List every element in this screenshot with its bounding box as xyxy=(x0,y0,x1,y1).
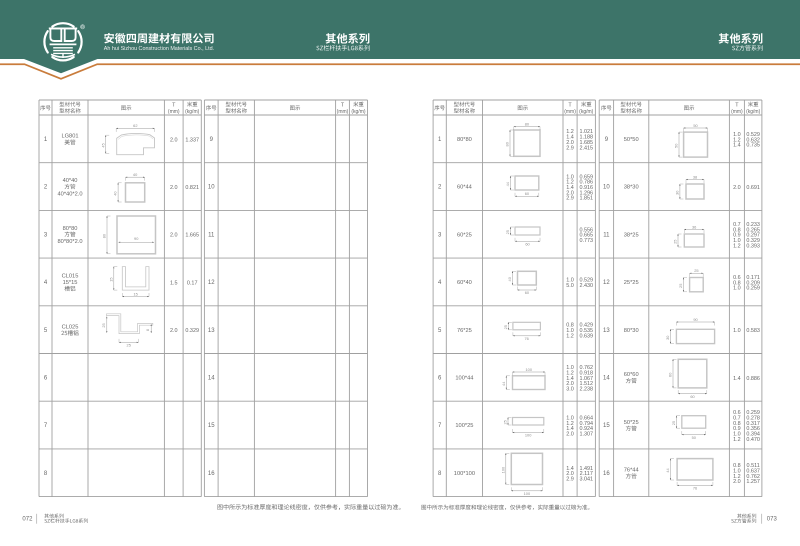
svg-text:38*25: 38*25 xyxy=(624,232,639,238)
svg-text:40*40: 40*40 xyxy=(63,178,78,184)
svg-text:25: 25 xyxy=(101,323,106,327)
svg-text:60: 60 xyxy=(690,394,695,399)
svg-text:(mm): (mm) xyxy=(337,109,349,115)
svg-text:2.0: 2.0 xyxy=(566,431,574,437)
svg-text:80: 80 xyxy=(102,233,107,238)
svg-text:9: 9 xyxy=(210,137,214,143)
svg-text:100: 100 xyxy=(526,367,533,372)
svg-text:60: 60 xyxy=(668,372,673,377)
svg-text:0.735: 0.735 xyxy=(746,143,760,149)
svg-text:2.415: 2.415 xyxy=(579,145,593,151)
svg-text:0.886: 0.886 xyxy=(746,376,760,382)
svg-text:76*25: 76*25 xyxy=(457,328,472,334)
svg-text:14: 14 xyxy=(208,375,215,381)
svg-text:073: 073 xyxy=(767,517,778,523)
svg-text:44: 44 xyxy=(505,181,510,186)
svg-text:(mm): (mm) xyxy=(168,109,180,115)
svg-text:072: 072 xyxy=(22,517,33,523)
svg-text:25: 25 xyxy=(505,230,510,234)
svg-text:45: 45 xyxy=(100,143,105,147)
svg-text:LG801: LG801 xyxy=(61,134,78,140)
svg-text:1.307: 1.307 xyxy=(579,431,593,437)
svg-text:0.259: 0.259 xyxy=(746,286,760,292)
svg-text:30: 30 xyxy=(675,190,680,195)
svg-text:(kg/m): (kg/m) xyxy=(746,109,761,115)
svg-text:6: 6 xyxy=(438,375,442,381)
svg-text:CL025: CL025 xyxy=(62,324,79,330)
svg-text:0.821: 0.821 xyxy=(185,185,199,191)
svg-text:3.041: 3.041 xyxy=(579,477,593,483)
svg-text:15: 15 xyxy=(133,291,137,296)
svg-text:2: 2 xyxy=(44,185,48,191)
svg-text:(kg/m): (kg/m) xyxy=(185,109,200,115)
svg-text:1.5: 1.5 xyxy=(170,280,178,286)
svg-text:6: 6 xyxy=(44,375,48,381)
svg-text:8: 8 xyxy=(145,329,150,331)
svg-text:1.2: 1.2 xyxy=(566,333,574,339)
svg-text:60*60: 60*60 xyxy=(624,372,639,378)
svg-text:90: 90 xyxy=(134,236,139,241)
svg-text:15: 15 xyxy=(603,423,610,429)
svg-text:25: 25 xyxy=(673,240,678,244)
svg-text:9: 9 xyxy=(605,137,609,143)
svg-text:2.0: 2.0 xyxy=(170,185,178,191)
svg-text:80: 80 xyxy=(525,121,530,126)
svg-text:1.0: 1.0 xyxy=(733,328,741,334)
svg-text:15*15: 15*15 xyxy=(63,280,78,286)
svg-text:1.337: 1.337 xyxy=(185,137,199,143)
svg-text:5.0: 5.0 xyxy=(566,283,574,289)
svg-text:1.0: 1.0 xyxy=(733,286,741,292)
svg-text:(kg/m): (kg/m) xyxy=(351,109,366,115)
svg-text:7: 7 xyxy=(438,423,442,429)
svg-text:16: 16 xyxy=(603,471,610,477)
svg-text:76: 76 xyxy=(693,486,697,491)
svg-text:0.470: 0.470 xyxy=(746,437,760,443)
svg-text:1: 1 xyxy=(44,137,48,143)
svg-text:2.0: 2.0 xyxy=(170,233,178,239)
svg-text:16: 16 xyxy=(208,471,215,477)
svg-text:38*30: 38*30 xyxy=(624,185,639,191)
svg-text:80*80*2.0: 80*80*2.0 xyxy=(58,239,83,245)
svg-text:76: 76 xyxy=(524,336,528,341)
svg-text:40*40*2.0: 40*40*2.0 xyxy=(58,191,83,197)
svg-text:11: 11 xyxy=(208,232,215,238)
svg-text:40: 40 xyxy=(507,276,512,281)
svg-text:T: T xyxy=(172,103,176,109)
svg-text:60*44: 60*44 xyxy=(457,185,472,191)
svg-text:40: 40 xyxy=(133,172,138,177)
svg-text:4: 4 xyxy=(438,280,442,286)
svg-text:38: 38 xyxy=(693,174,697,179)
svg-text:12: 12 xyxy=(603,280,610,286)
svg-text:0.773: 0.773 xyxy=(579,238,593,244)
svg-text:(kg/m): (kg/m) xyxy=(579,109,594,115)
svg-text:100*25: 100*25 xyxy=(455,423,473,429)
svg-text:100*100: 100*100 xyxy=(454,471,475,477)
svg-text:15: 15 xyxy=(208,423,215,429)
svg-text:25: 25 xyxy=(127,343,131,348)
svg-text:12: 12 xyxy=(208,280,215,286)
svg-text:0.393: 0.393 xyxy=(746,243,760,249)
svg-text:1.2: 1.2 xyxy=(733,243,741,249)
svg-text:1.665: 1.665 xyxy=(185,233,199,239)
svg-text:T: T xyxy=(568,103,572,109)
svg-text:1: 1 xyxy=(438,137,442,143)
svg-text:100: 100 xyxy=(525,433,532,438)
svg-text:2.430: 2.430 xyxy=(579,283,593,289)
svg-text:62: 62 xyxy=(133,123,137,128)
svg-text:8: 8 xyxy=(438,471,442,477)
svg-text:2.0: 2.0 xyxy=(733,185,741,191)
svg-text:10: 10 xyxy=(208,185,215,191)
svg-text:15: 15 xyxy=(108,277,113,281)
svg-text:3: 3 xyxy=(44,232,48,238)
svg-text:60: 60 xyxy=(525,191,530,196)
svg-text:50*50: 50*50 xyxy=(624,137,639,143)
svg-text:80: 80 xyxy=(505,141,510,146)
svg-text:2.0: 2.0 xyxy=(733,479,741,485)
svg-text:(mm): (mm) xyxy=(564,109,576,115)
svg-text:7: 7 xyxy=(44,423,48,429)
svg-text:(mm): (mm) xyxy=(731,109,743,115)
svg-text:0.691: 0.691 xyxy=(746,185,760,191)
svg-text:80*30: 80*30 xyxy=(624,328,639,334)
svg-text:90: 90 xyxy=(693,317,698,322)
svg-text:30: 30 xyxy=(665,335,670,340)
svg-text:5: 5 xyxy=(438,328,442,334)
svg-text:44: 44 xyxy=(665,468,670,473)
svg-text:76*44: 76*44 xyxy=(624,468,639,474)
svg-text:50: 50 xyxy=(674,143,679,148)
svg-text:100*44: 100*44 xyxy=(455,375,473,381)
svg-text:25: 25 xyxy=(671,421,676,425)
svg-text:1.4: 1.4 xyxy=(733,376,741,382)
svg-text:44: 44 xyxy=(501,381,506,386)
svg-text:T: T xyxy=(341,103,345,109)
svg-text:100: 100 xyxy=(500,466,505,473)
svg-text:60*25: 60*25 xyxy=(457,232,472,238)
svg-text:11: 11 xyxy=(603,232,610,238)
svg-text:100: 100 xyxy=(524,491,531,496)
svg-text:1.4: 1.4 xyxy=(733,143,741,149)
svg-text:1.257: 1.257 xyxy=(746,479,760,485)
svg-text:25: 25 xyxy=(678,284,683,288)
svg-text:0.639: 0.639 xyxy=(579,333,593,339)
svg-text:4: 4 xyxy=(44,280,48,286)
svg-text:2.0: 2.0 xyxy=(170,137,178,143)
svg-text:13: 13 xyxy=(208,328,215,334)
svg-text:25*25: 25*25 xyxy=(624,280,639,286)
svg-text:CL015: CL015 xyxy=(62,273,79,279)
svg-text:1.2: 1.2 xyxy=(733,437,741,443)
svg-text:2.9: 2.9 xyxy=(566,477,574,483)
svg-text:0.583: 0.583 xyxy=(746,328,760,334)
svg-text:3.0: 3.0 xyxy=(566,386,574,392)
svg-text:Ah hui Sizhou Construction Mat: Ah hui Sizhou Construction Materials Co.… xyxy=(104,46,214,52)
svg-text:2.9: 2.9 xyxy=(566,196,574,202)
svg-text:1.851: 1.851 xyxy=(579,196,593,202)
svg-text:80*80: 80*80 xyxy=(63,226,78,232)
svg-text:60: 60 xyxy=(525,242,530,247)
svg-text:25: 25 xyxy=(694,268,698,273)
svg-text:3: 3 xyxy=(438,232,442,238)
svg-text:13: 13 xyxy=(603,328,610,334)
svg-text:50*25: 50*25 xyxy=(624,420,639,426)
svg-text:2.0: 2.0 xyxy=(170,328,178,334)
svg-text:50: 50 xyxy=(693,123,698,128)
svg-text:36: 36 xyxy=(692,224,696,229)
svg-text:0.329: 0.329 xyxy=(185,328,199,334)
svg-text:2.238: 2.238 xyxy=(579,386,593,392)
svg-text:T: T xyxy=(735,103,739,109)
svg-text:8: 8 xyxy=(44,471,48,477)
svg-text:10: 10 xyxy=(603,185,610,191)
svg-text:14: 14 xyxy=(603,375,610,381)
svg-text:60: 60 xyxy=(525,290,530,295)
svg-text:2.9: 2.9 xyxy=(566,145,574,151)
svg-text:25: 25 xyxy=(503,325,508,329)
svg-text:5: 5 xyxy=(44,328,48,334)
svg-text:2: 2 xyxy=(438,185,442,191)
svg-text:40: 40 xyxy=(113,191,118,196)
svg-text:60*40: 60*40 xyxy=(457,280,472,286)
svg-text:25: 25 xyxy=(503,420,508,424)
svg-text:50: 50 xyxy=(692,435,697,440)
svg-text:80*80: 80*80 xyxy=(457,137,472,143)
svg-text:0.17: 0.17 xyxy=(187,280,198,286)
